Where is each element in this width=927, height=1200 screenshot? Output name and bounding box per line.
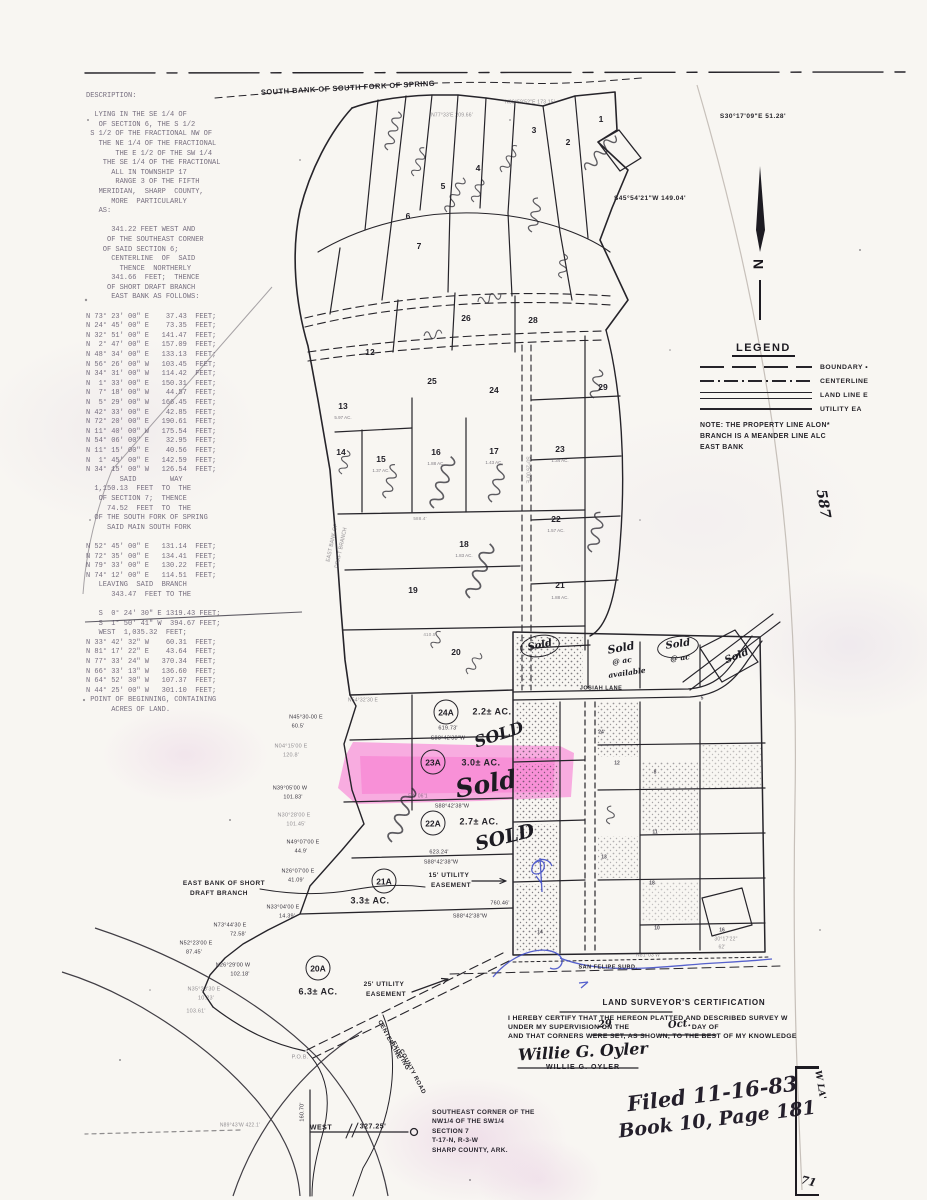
parcel-acreage: 3.3± AC.	[350, 897, 389, 906]
centerline-line-sample	[700, 380, 812, 382]
lot-number: 24	[489, 386, 498, 395]
bearing-label: 102.18'	[230, 972, 249, 978]
utility-line-sample	[700, 408, 812, 410]
legal-description-line: OF THE SOUTHEAST CORNER	[86, 236, 304, 246]
surveyor-certification: LAND SURVEYOR'S CERTIFICATION I HEREBY C…	[508, 998, 860, 1042]
label-leader-line	[260, 885, 425, 893]
certification-line: AND THAT CORNERS WERE SET, AS SHOWN, TO …	[508, 1032, 860, 1041]
legal-description-line: OF SECTION 6, THE S 1/2	[86, 121, 304, 131]
corner-marker-circle	[411, 1129, 418, 1136]
lot-number: 22	[551, 515, 560, 524]
legal-description-line	[86, 102, 304, 112]
grid-lot-number: 12	[614, 762, 620, 767]
lot-number: 3	[532, 126, 537, 135]
legal-description-line: OF SAID SECTION 6;	[86, 246, 304, 256]
north-arrow-icon: N	[752, 158, 782, 323]
grid-lot-number: 24	[598, 731, 604, 736]
handwritten-month: Oct.	[668, 1018, 692, 1031]
bearing-label: S88°42'38"W	[435, 804, 470, 810]
grid-lot-number: 11	[652, 831, 657, 836]
lot-number: 14	[336, 448, 345, 457]
legal-description-line: N 52° 45' 00" E 131.14 FEET;	[86, 543, 304, 553]
legal-description-line: LEAVING SAID BRANCH	[86, 581, 304, 591]
legal-description-line	[86, 303, 304, 313]
bearing-label: 41.09'	[288, 878, 304, 884]
lot-number: 5	[441, 182, 446, 191]
legal-description-line: N 2° 47' 00" E 157.09 FEET;	[86, 341, 304, 351]
lot-number: 4	[476, 164, 481, 173]
legal-description-line: N 11° 15' 00" E 40.56 FEET;	[86, 447, 304, 457]
bearing-label: 44.9'	[295, 849, 308, 855]
handwritten-day: 29	[598, 1018, 613, 1030]
lot-acreage: 1.88 AC.	[427, 462, 444, 467]
legal-description-line: N 11° 40' 00" W 175.54 FEET;	[86, 428, 304, 438]
map-label: S45°54'21"W 149.04'	[614, 196, 686, 203]
legal-description-line: 343.47 FEET TO THE	[86, 591, 304, 601]
legal-description-line: N 7° 18' 00" W 44.57 FEET;	[86, 389, 304, 399]
legal-description-line	[86, 600, 304, 610]
legal-description-line: OF THE SOUTH FORK OF SPRING	[86, 514, 304, 524]
legal-description-text: DESCRIPTION: LYING IN THE SE 1/4 OF OF S…	[86, 92, 304, 716]
lot-acreage: 5.97 AC.	[334, 416, 351, 421]
map-label: EASEMENT	[366, 992, 406, 999]
legend-row: CENTERLINE	[700, 377, 925, 385]
legal-description-line	[86, 217, 304, 227]
bearing-label: N69°59'52"E 173.15'	[505, 101, 555, 106]
bearing-label: S0°25'00"E	[525, 456, 530, 483]
landline-line-sample	[700, 392, 812, 399]
parcel-20a-marker: 20A	[306, 956, 331, 981]
legal-description-line: N 54° 06' 00" E 32.95 FEET;	[86, 437, 304, 447]
legal-description-line: MERIDIAN, SHARP COUNTY,	[86, 188, 304, 198]
legal-description-line: OF SECTION 7; THENCE	[86, 495, 304, 505]
parcel-21a-marker: 21A	[372, 869, 397, 894]
section-corner-note: SOUTHEAST CORNER OF THE NW1/4 OF THE SW1…	[432, 1108, 535, 1155]
lot-number: 12	[365, 348, 374, 357]
lot-number: 15	[376, 455, 385, 464]
lot-number: 29	[598, 383, 607, 392]
legal-description-line: THENCE NORTHERLY	[86, 265, 304, 275]
bearing-label: S88°42'38"W	[424, 860, 459, 866]
legal-description-line: N 1° 33' 00" E 150.31 FEET;	[86, 380, 304, 390]
legend-row: UTILITY EA	[700, 405, 925, 413]
legal-description-line: OF SHORT DRAFT BRANCH	[86, 284, 304, 294]
bearing-label: N73°44'30 E	[214, 923, 247, 929]
grid-lot-number: 18	[649, 882, 655, 887]
bearing-label: 160.70'	[300, 1102, 306, 1121]
lot-number: 17	[489, 447, 498, 456]
bearing-label: 101.83'	[283, 795, 302, 801]
bearing-label: N54°32'30 E	[348, 699, 378, 704]
certification-heading: LAND SURVEYOR'S CERTIFICATION	[508, 998, 860, 1007]
bearing-label: 5W 06'1	[408, 795, 428, 800]
legal-description-line: POINT OF BEGINNING, CONTAINING	[86, 696, 304, 706]
legal-description-line: THE NE 1/4 OF THE FRACTIONAL	[86, 140, 304, 150]
bearing-label: 30°17'22"	[714, 938, 737, 943]
parcel-acreage: 2.2± AC.	[472, 708, 511, 717]
north-label: N	[750, 259, 766, 269]
legal-description-line: N 48° 34' 00" E 133.13 FEET;	[86, 351, 304, 361]
legal-description-line: ACRES OF LAND.	[86, 706, 304, 716]
lot-number: 6	[406, 212, 411, 221]
lot-acreage: 1.34 AC.	[551, 459, 568, 464]
legal-description-line: N 74° 12' 00" E 114.51 FEET;	[86, 572, 304, 582]
legal-description-line: N 24° 45' 00" E 73.35 FEET;	[86, 322, 304, 332]
map-label: 25' UTILITY	[364, 982, 405, 989]
legal-description-line: N 1° 45' 00" E 142.59 FEET;	[86, 457, 304, 467]
bearing-label: 60.5'	[292, 724, 305, 730]
lot-acreage: 1.88 AC.	[551, 596, 568, 601]
grid-lot-number: 8	[654, 771, 657, 776]
legal-description-line: N 32° 51' 00" E 141.47 FEET;	[86, 332, 304, 342]
bearing-label: 588.4'	[413, 517, 426, 522]
lot-number: 1	[599, 115, 604, 124]
bearing-label: N30°28'00 E	[278, 813, 311, 819]
legal-description-line: MORE PARTICULARLY	[86, 198, 304, 208]
legend-row: LAND LINE E	[700, 391, 925, 399]
plat-document-page: DESCRIPTION: LYING IN THE SE 1/4 OF OF S…	[0, 0, 927, 1200]
lot-number: 16	[431, 448, 440, 457]
map-label: WEST	[310, 1125, 332, 1132]
legal-description-line: N 66° 33' 13" W 136.60 FEET;	[86, 668, 304, 678]
legal-description-line: S 0° 24' 30" E 1319.43 FEET;	[86, 610, 304, 620]
lot-acreage: 1.57 AC.	[547, 529, 564, 534]
bearing-label: 619.73'	[438, 726, 457, 732]
legal-description-line: CENTERLINE OF SAID	[86, 255, 304, 265]
legal-description-line: N 34° 31' 00" W 114.42 FEET;	[86, 370, 304, 380]
legal-description-line: SAID MAIN SOUTH FORK	[86, 524, 304, 534]
grid-lot-number: 14	[537, 931, 543, 936]
boundary-line-sample	[700, 366, 812, 368]
bearing-label: S88°42'38"W	[453, 914, 488, 920]
lot-number: 23	[555, 445, 564, 454]
lot-number: 21	[555, 581, 564, 590]
bearing-label: N77°33'E 209.66'	[431, 114, 473, 119]
legal-description-line: 1,150.13 FEET TO THE	[86, 485, 304, 495]
bearing-label: 410.5'	[423, 633, 436, 638]
legal-description-line: N 56° 26' 00" W 103.45 FEET;	[86, 361, 304, 371]
map-label: EAST BANK OF SHORT	[183, 881, 265, 888]
bearing-label: 623.24'	[429, 850, 448, 856]
legal-description-line: S 1/2 OF THE FRACTIONAL NW OF	[86, 130, 304, 140]
grid-lot-number: 5	[701, 697, 704, 702]
legal-description-line: N 64° 52' 30" W 107.37 FEET;	[86, 677, 304, 687]
bearing-label: N35°23'30 E	[188, 987, 221, 993]
legal-description-line: S 1° 50' 41" W 394.67 FEET;	[86, 620, 304, 630]
map-label: JOSIAH LANE	[580, 686, 622, 692]
surveyor-typed-name: WILLIE G. OYLER	[546, 1064, 620, 1071]
bearing-label: S88°42'38"W	[431, 736, 466, 742]
map-label: SAN FELIPE SUBD.	[578, 965, 637, 971]
legend-row: BOUNDARY •	[700, 363, 925, 371]
easement-arrow	[412, 979, 448, 993]
legal-description-line: LYING IN THE SE 1/4 OF	[86, 111, 304, 121]
parcel-acreage: 6.3± AC.	[298, 988, 337, 997]
legend: LEGEND BOUNDARY • CENTERLINE LAND LINE E…	[700, 338, 925, 413]
legal-description-line: N 79° 33' 00" E 130.22 FEET;	[86, 562, 304, 572]
margin-bracket: W LA' 71	[795, 1066, 837, 1196]
legend-title: LEGEND	[732, 342, 795, 357]
legal-description-line: N 72° 20' 00" E 190.61 FEET;	[86, 418, 304, 428]
line-break-symbol	[346, 1123, 358, 1138]
lot-acreage: 1.43 AC.	[485, 461, 502, 466]
parcel-24a-marker: 24A	[434, 700, 459, 725]
bearing-label: N04°15'00 E	[275, 744, 308, 750]
legal-description-line: N 73° 23' 00" E 37.43 FEET;	[86, 313, 304, 323]
legal-description-line: RANGE 3 OF THE FIFTH	[86, 178, 304, 188]
legal-description-line: N 77° 33' 24" W 370.34 FEET;	[86, 658, 304, 668]
bearing-label: N89°43'W 422.1'	[220, 1124, 260, 1129]
legal-description-line: N 81° 17' 22" E 43.64 FEET;	[86, 648, 304, 658]
legal-description-line: 74.52 FEET TO THE	[86, 505, 304, 515]
lot-number: 19	[408, 586, 417, 595]
bearing-label: N52°23'00 E	[180, 941, 213, 947]
legal-description-line: N 5° 29' 00" W 166.45 FEET;	[86, 399, 304, 409]
parcel-22a-marker: 22A	[421, 811, 446, 836]
legal-description-line: N 34° 15' 00" W 126.54 FEET;	[86, 466, 304, 476]
bearing-label: 120.8'	[283, 753, 299, 759]
legal-description-line	[86, 533, 304, 543]
legal-description-line: THE E 1/2 OF THE SW 1/4	[86, 150, 304, 160]
legal-description-line: EAST BANK AS FOLLOWS:	[86, 293, 304, 303]
bearing-label: N39°05'00 W	[273, 786, 308, 792]
legal-description-line: 341.66 FEET; THENCE	[86, 274, 304, 284]
parcel-acreage: 3.0± AC.	[461, 759, 500, 768]
legal-description-line: SAID WAY	[86, 476, 304, 486]
bearing-label: 87.45'	[186, 950, 202, 956]
map-label: EASEMENT	[431, 883, 471, 890]
map-label: 15' UTILITY	[429, 873, 470, 880]
lot-number: 25	[427, 377, 436, 386]
lot-acreage: 1.83 AC.	[455, 554, 472, 559]
lot-number: 18	[459, 540, 468, 549]
legal-description-line: ALL IN TOWNSHIP 17	[86, 169, 304, 179]
legal-description-line: N 33° 42' 32" W 60.31 FEET;	[86, 639, 304, 649]
bearing-label: 10.23'	[198, 996, 214, 1002]
parcel-23a-marker: 23A	[421, 750, 446, 775]
parcel-acreage: 2.7± AC.	[459, 818, 498, 827]
bearing-label: 760.46'	[490, 901, 509, 907]
bearing-label: 62'	[718, 946, 725, 951]
map-label: DRAFT BRANCH	[190, 891, 248, 898]
legal-description-line: WEST 1,035.32 FEET;	[86, 629, 304, 639]
lot-number: 20	[451, 648, 460, 657]
bearing-label: P.O.B.	[292, 1055, 309, 1061]
lot-number: 13	[338, 402, 347, 411]
lot-number: 2	[566, 138, 571, 147]
grid-lot-number: 13	[601, 856, 607, 861]
bearing-label: N45°30-00 E	[289, 715, 323, 721]
meander-note: NOTE: THE PROPERTY LINE ALON* BRANCH IS …	[700, 420, 920, 453]
bearing-label: 14.39'	[279, 914, 295, 920]
bearing-label: 72.58'	[230, 932, 246, 938]
legal-description-line: N 72° 35' 00" E 134.41 FEET;	[86, 553, 304, 563]
legal-description-line: AS:	[86, 207, 304, 217]
margin-number: 71	[800, 1173, 818, 1189]
legal-description-line: N 44° 25' 00" W 301.10 FEET;	[86, 687, 304, 697]
bearing-label: N81°03'W	[636, 954, 660, 959]
grid-lot-number: 16	[719, 929, 725, 934]
bearing-label: N49°07'00 E	[287, 840, 320, 846]
lot-number: 28	[528, 316, 537, 325]
legal-description-line: THE SE 1/4 OF THE FRACTIONAL	[86, 159, 304, 169]
easement-arrow	[472, 879, 506, 884]
lot-acreage: 1.37 AC.	[372, 469, 389, 474]
bearing-label: 103.61'	[186, 1009, 205, 1015]
map-label: S30°17'09"E 51.28'	[720, 114, 786, 121]
margin-vertical-text: W LA'	[812, 1070, 827, 1101]
bearing-label: N33°04'00 E	[267, 905, 300, 911]
legal-description-line: 341.22 FEET WEST AND	[86, 226, 304, 236]
bearing-label: N26°29'00 W	[216, 963, 251, 969]
lot-number: 7	[417, 242, 422, 251]
grid-lot-number: 10	[654, 927, 660, 932]
bearing-label: N26°07'00 E	[282, 869, 315, 875]
map-label: 327.25'	[360, 1124, 387, 1131]
lot-number: 26	[461, 314, 470, 323]
legal-description-line: N 42° 33' 00" E 42.85 FEET;	[86, 409, 304, 419]
bearing-label: 101.45'	[286, 822, 305, 828]
